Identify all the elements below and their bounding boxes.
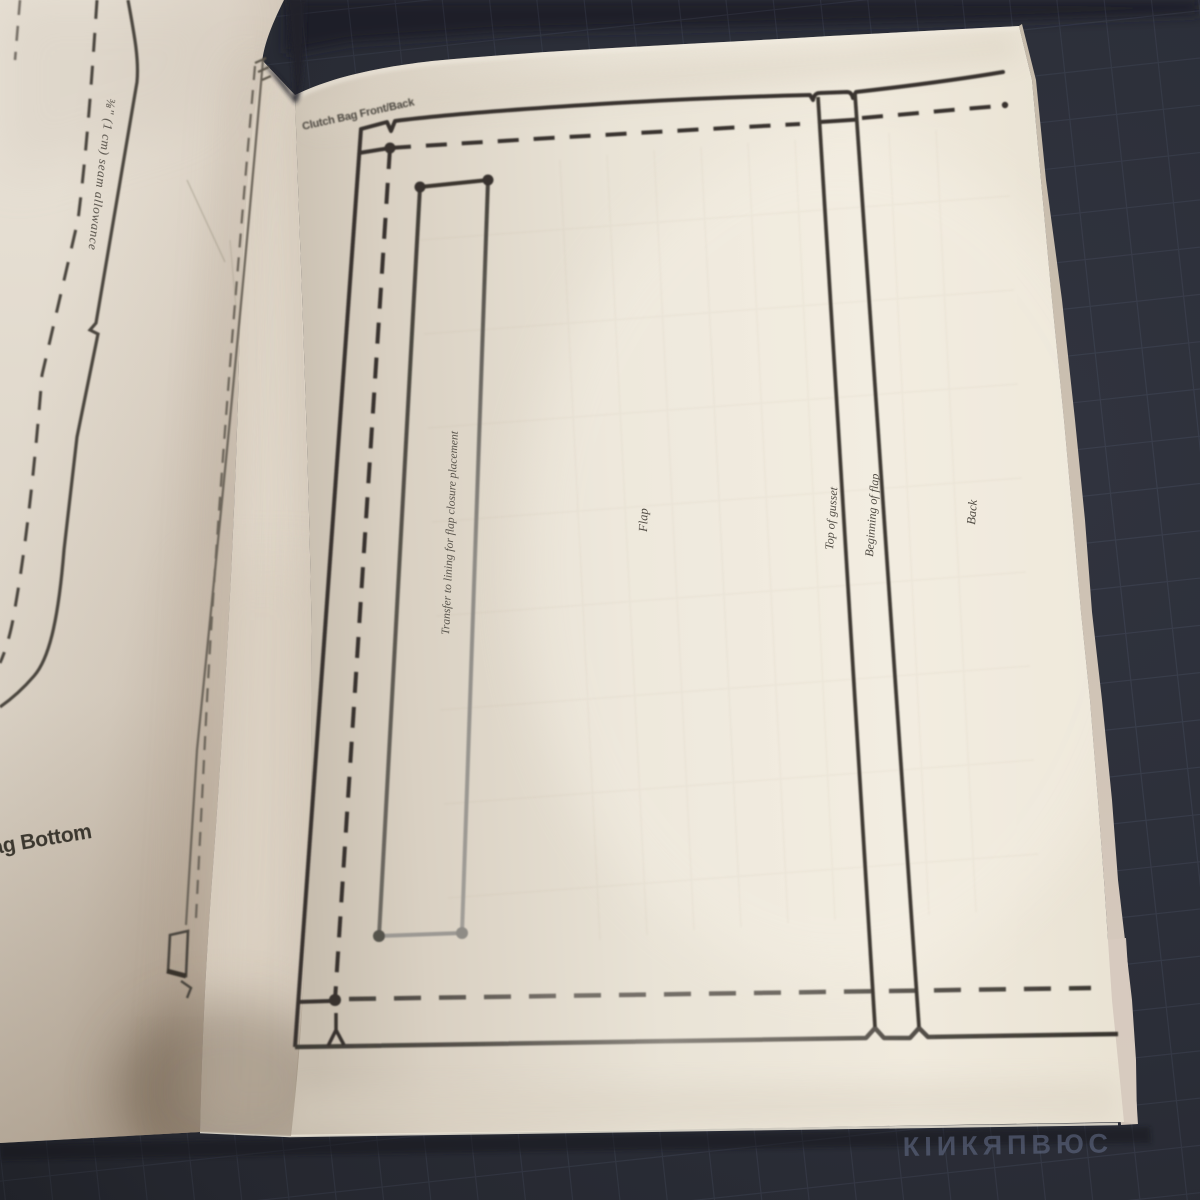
svg-text:Flap: Flap — [636, 508, 651, 533]
svg-text:Back: Back — [964, 499, 980, 525]
svg-text:КІИКЯПВЮС: КІИКЯПВЮС — [903, 1128, 1114, 1162]
